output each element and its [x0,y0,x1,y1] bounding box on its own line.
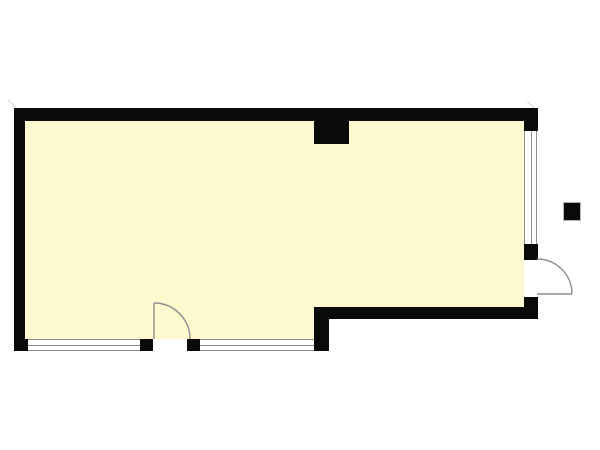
right-door-swing-arc [537,259,572,294]
wall-bottom-right [314,307,538,319]
scan-artifact-top-right [527,101,535,108]
window-mullion [28,345,140,346]
wall-bottom-stub-left-of-door [140,339,153,351]
right-door-opening [524,260,538,297]
outside-post [563,202,581,221]
wall-left [14,108,25,351]
wall-bottom-left-corner [14,339,28,351]
wall-top [14,108,538,121]
floor-plan-canvas [0,0,600,450]
wall-step-vertical [314,307,329,351]
top-wall-column [314,121,349,144]
bottom-window-right [200,339,314,351]
wall-right-top-stub [524,108,538,131]
window-mullion [200,345,314,346]
right-window [524,131,537,244]
room-floor-upper [25,121,526,307]
scan-artifact-top-left [7,99,17,107]
window-mullion [531,131,532,244]
wall-bottom-stub-right-of-door [187,339,200,351]
bottom-window-left [28,339,140,351]
wall-right-mid-stub [524,244,538,260]
bottom-door-opening [153,339,187,351]
room-floor-lower [25,307,314,339]
